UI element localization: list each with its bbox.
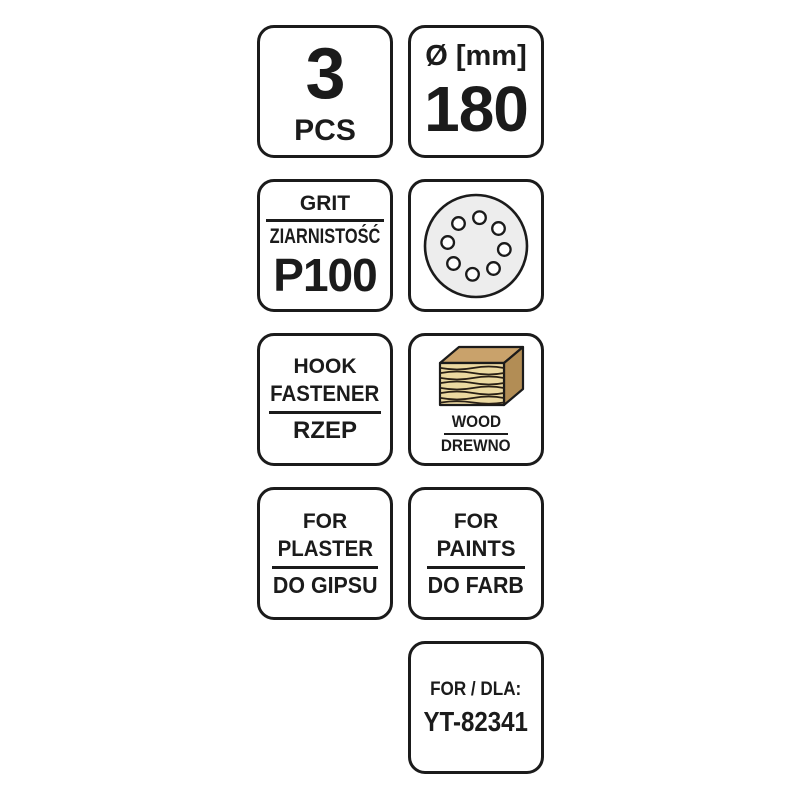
underline-rule [444,433,508,435]
badge-grit: GRIT ZIARNISTOŚĆ P100 [257,179,393,312]
badge-for-plaster: FOR PLASTER DO GIPSU [257,487,393,620]
quantity-unit: PCS [294,116,356,146]
model-label: FOR / DLA: [430,680,521,699]
underline-rule [272,566,378,569]
badge-hook-fastener: HOOK FASTENER RZEP [257,333,393,466]
paints-line1: FOR [454,511,498,532]
underline-rule [266,219,384,222]
underline-rule [269,411,381,414]
diameter-value: 180 [424,77,528,141]
plaster-line1: FOR [303,511,347,532]
badge-model-number: FOR / DLA: YT-82341 [408,641,544,774]
underline-rule [427,566,525,569]
fastener-label-pl: RZEP [293,419,357,443]
badge-quantity: 3 PCS [257,25,393,158]
badge-sanding-disc [408,179,544,312]
grit-label-pl: ZIARNISTOŚĆ [270,226,381,247]
diameter-label: Ø [mm] [425,42,527,71]
fastener-line2: FASTENER [270,383,379,405]
grit-value: P100 [273,252,376,298]
material-label-en: WOOD [451,413,500,430]
model-value: YT-82341 [424,708,528,736]
grit-label-en: GRIT [300,193,350,214]
paints-label-pl: DO FARB [428,574,524,597]
wood-block-icon [420,345,532,409]
plaster-label-pl: DO GIPSU [273,574,378,597]
fastener-line1: HOOK [294,356,357,377]
product-spec-icon-sheet: 3 PCS Ø [mm] 180 GRIT ZIARNISTOŚĆ P100 [257,25,544,774]
quantity-value: 3 [305,38,344,110]
plaster-line2: PLASTER [277,538,372,560]
badge-for-paints: FOR PAINTS DO FARB [408,487,544,620]
material-label-pl: DREWNO [441,437,511,454]
badge-wood-material: WOOD DREWNO [408,333,544,466]
sanding-disc-8-holes-icon [416,188,536,304]
paints-line2: PAINTS [436,538,515,560]
badge-diameter: Ø [mm] 180 [408,25,544,158]
